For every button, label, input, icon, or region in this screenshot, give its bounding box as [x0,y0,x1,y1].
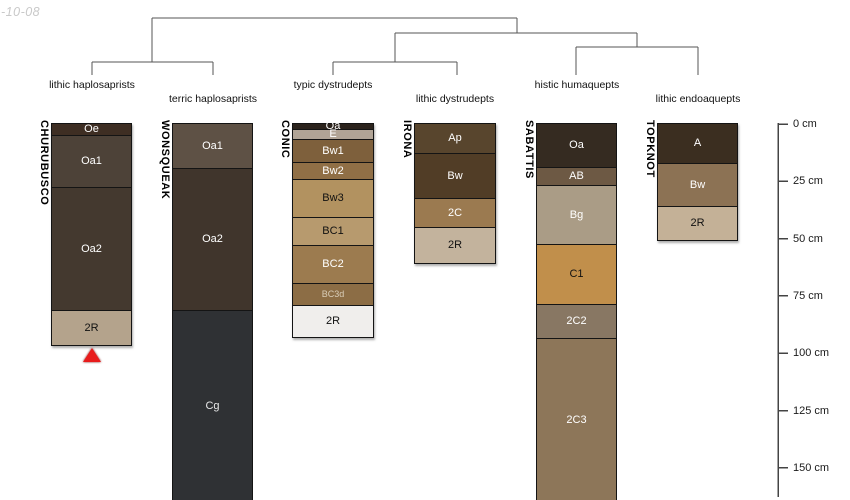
horizon-irona-2r: 2R [415,227,495,263]
horizon-name-label: 2C2 [566,316,586,327]
horizon-name-label: Oa1 [81,156,102,167]
series-name-topknot: TOPKNOT [643,120,656,178]
horizon-sabattis-2c3: 2C3 [537,338,616,500]
horizon-name-label: 2R [326,316,340,327]
horizon-conic-bw2: Bw2 [293,162,373,179]
horizon-name-label: Bw3 [322,193,343,204]
depth-tick-label: 150 cm [793,462,829,474]
horizon-name-label: 2R [690,218,704,229]
horizon-churubusco-oa1: Oa1 [52,135,131,187]
horizon-irona-2c: 2C [415,198,495,227]
depth-tick-label: 25 cm [793,175,823,187]
horizon-conic-e: E [293,129,373,139]
horizon-name-label: 2R [84,323,98,334]
taxon-label: histic humaquepts [477,79,677,91]
horizon-name-label: Oa2 [81,244,102,255]
horizon-name-label: C1 [569,269,583,280]
depth-tick-label: 50 cm [793,233,823,245]
taxon-label: lithic haplosaprists [0,79,192,91]
horizon-topknot-a: A [658,124,737,163]
horizon-name-label: Ap [448,133,461,144]
horizon-sabattis-ab: AB [537,167,616,185]
profile-column-churubusco: OeOa1Oa22R [51,123,132,346]
taxon-label: terric haplosaprists [113,93,313,105]
taxon-label: typic dystrudepts [233,79,433,91]
horizon-name-label: Bw1 [322,146,343,157]
horizon-conic-bc2: BC2 [293,245,373,283]
horizon-sabattis-oa: Oa [537,124,616,167]
profile-column-irona: ApBw2C2R [414,123,496,264]
depth-tick-label: 100 cm [793,347,829,359]
horizon-name-label: Bw [690,180,705,191]
horizon-conic-bw3: Bw3 [293,179,373,217]
horizon-topknot-2r: 2R [658,206,737,240]
horizon-name-label: Bg [570,210,583,221]
horizon-name-label: Oe [84,124,99,135]
horizon-name-label: Oa [569,140,584,151]
profile-column-wonsqueak: Oa1Oa2Cg [172,123,253,500]
horizon-name-label: BC3d [322,290,345,299]
horizon-name-label: 2C [448,208,462,219]
horizon-name-label: A [694,138,701,149]
horizon-irona-bw: Bw [415,153,495,198]
series-name-churubusco: CHURUBUSCO [37,120,50,205]
horizon-name-label: BC1 [322,226,343,237]
horizon-conic-bw1: Bw1 [293,139,373,162]
horizon-name-label: 2C3 [566,415,586,426]
horizon-churubusco-oe: Oe [52,124,131,135]
red-triangle-marker [83,348,101,362]
horizon-name-label: Cg [205,401,219,412]
horizon-sabattis-bg: Bg [537,185,616,244]
soil-profile-chart: -10-08 lithic haplosapriststerric haplos… [0,0,850,500]
horizon-topknot-bw: Bw [658,163,737,206]
horizon-name-label: Bw2 [322,166,343,177]
horizon-name-label: Oa1 [202,141,223,152]
series-name-irona: IRONA [400,120,413,158]
horizon-wonsqueak-cg: Cg [173,310,252,500]
horizon-name-label: AB [569,171,584,182]
profile-column-sabattis: OaABBgC12C22C3 [536,123,617,500]
horizon-name-label: 2R [448,240,462,251]
series-name-conic: CONIC [278,120,291,158]
horizon-wonsqueak-oa2: Oa2 [173,168,252,310]
horizon-churubusco-oa2: Oa2 [52,187,131,310]
horizon-name-label: E [329,129,336,140]
horizon-name-label: BC2 [322,259,343,270]
depth-tick-label: 0 cm [793,118,817,130]
profile-column-conic: OaEBw1Bw2Bw3BC1BC2BC3d2R [292,123,374,338]
horizon-sabattis-c1: C1 [537,244,616,304]
horizon-irona-ap: Ap [415,124,495,153]
series-name-wonsqueak: WONSQUEAK [158,120,171,199]
horizon-wonsqueak-oa1: Oa1 [173,124,252,168]
horizon-conic-bc3d: BC3d [293,283,373,305]
taxon-label: lithic dystrudepts [355,93,555,105]
horizon-churubusco-2r: 2R [52,310,131,345]
horizon-sabattis-2c2: 2C2 [537,304,616,338]
horizon-name-label: Bw [447,171,462,182]
taxon-label: lithic endoaquepts [598,93,798,105]
horizon-conic-bc1: BC1 [293,217,373,245]
profile-column-topknot: ABw2R [657,123,738,241]
series-name-sabattis: SABATTIS [522,120,535,179]
depth-tick-label: 125 cm [793,405,829,417]
horizon-conic-2r: 2R [293,305,373,337]
horizon-name-label: Oa2 [202,234,223,245]
depth-tick-label: 75 cm [793,290,823,302]
